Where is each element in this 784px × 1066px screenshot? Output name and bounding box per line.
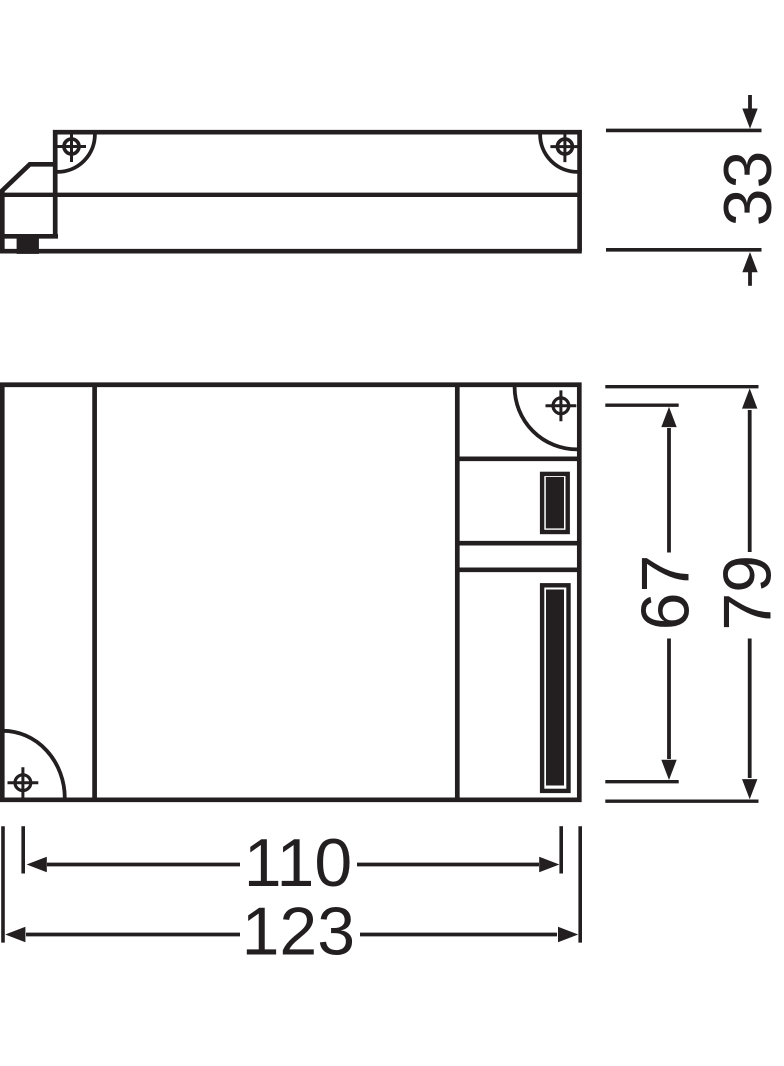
svg-text:67: 67 bbox=[628, 555, 704, 631]
svg-text:110: 110 bbox=[244, 825, 352, 901]
svg-text:79: 79 bbox=[710, 555, 784, 631]
svg-text:123: 123 bbox=[242, 894, 355, 970]
svg-text:33: 33 bbox=[710, 151, 784, 227]
